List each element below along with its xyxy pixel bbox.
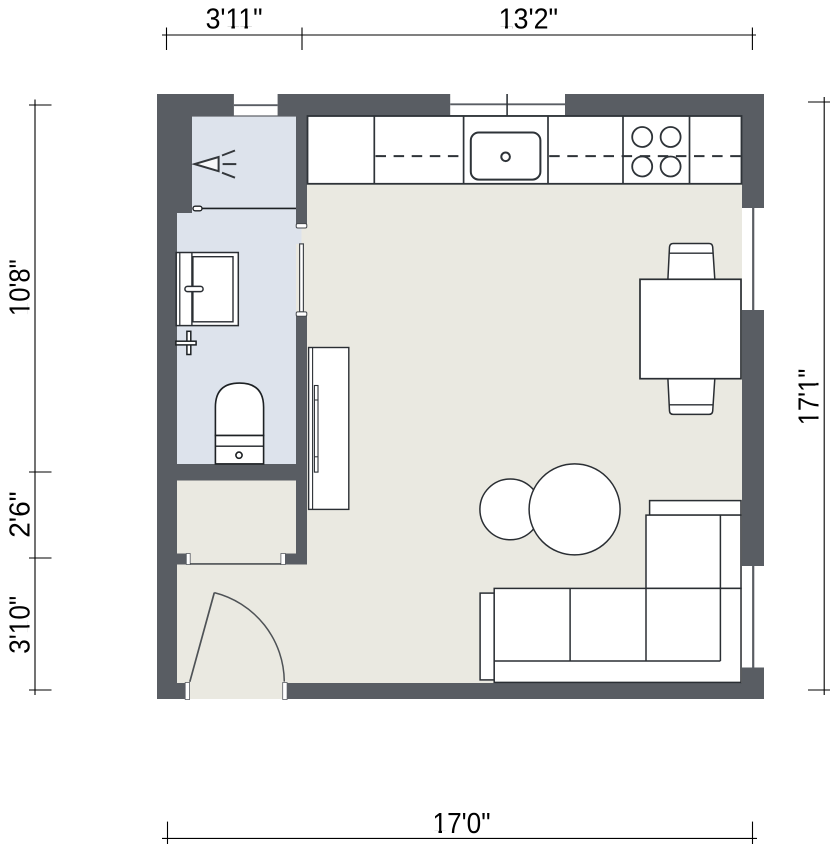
svg-text:17'0": 17'0" xyxy=(433,808,491,840)
svg-text:2'6": 2'6" xyxy=(5,491,37,537)
svg-text:10'8": 10'8" xyxy=(5,259,37,316)
svg-text:3'10": 3'10" xyxy=(5,596,37,654)
svg-text:3'11": 3'11" xyxy=(206,4,263,36)
svg-text:13'2": 13'2" xyxy=(499,4,558,36)
svg-text:17'1": 17'1" xyxy=(793,369,825,426)
